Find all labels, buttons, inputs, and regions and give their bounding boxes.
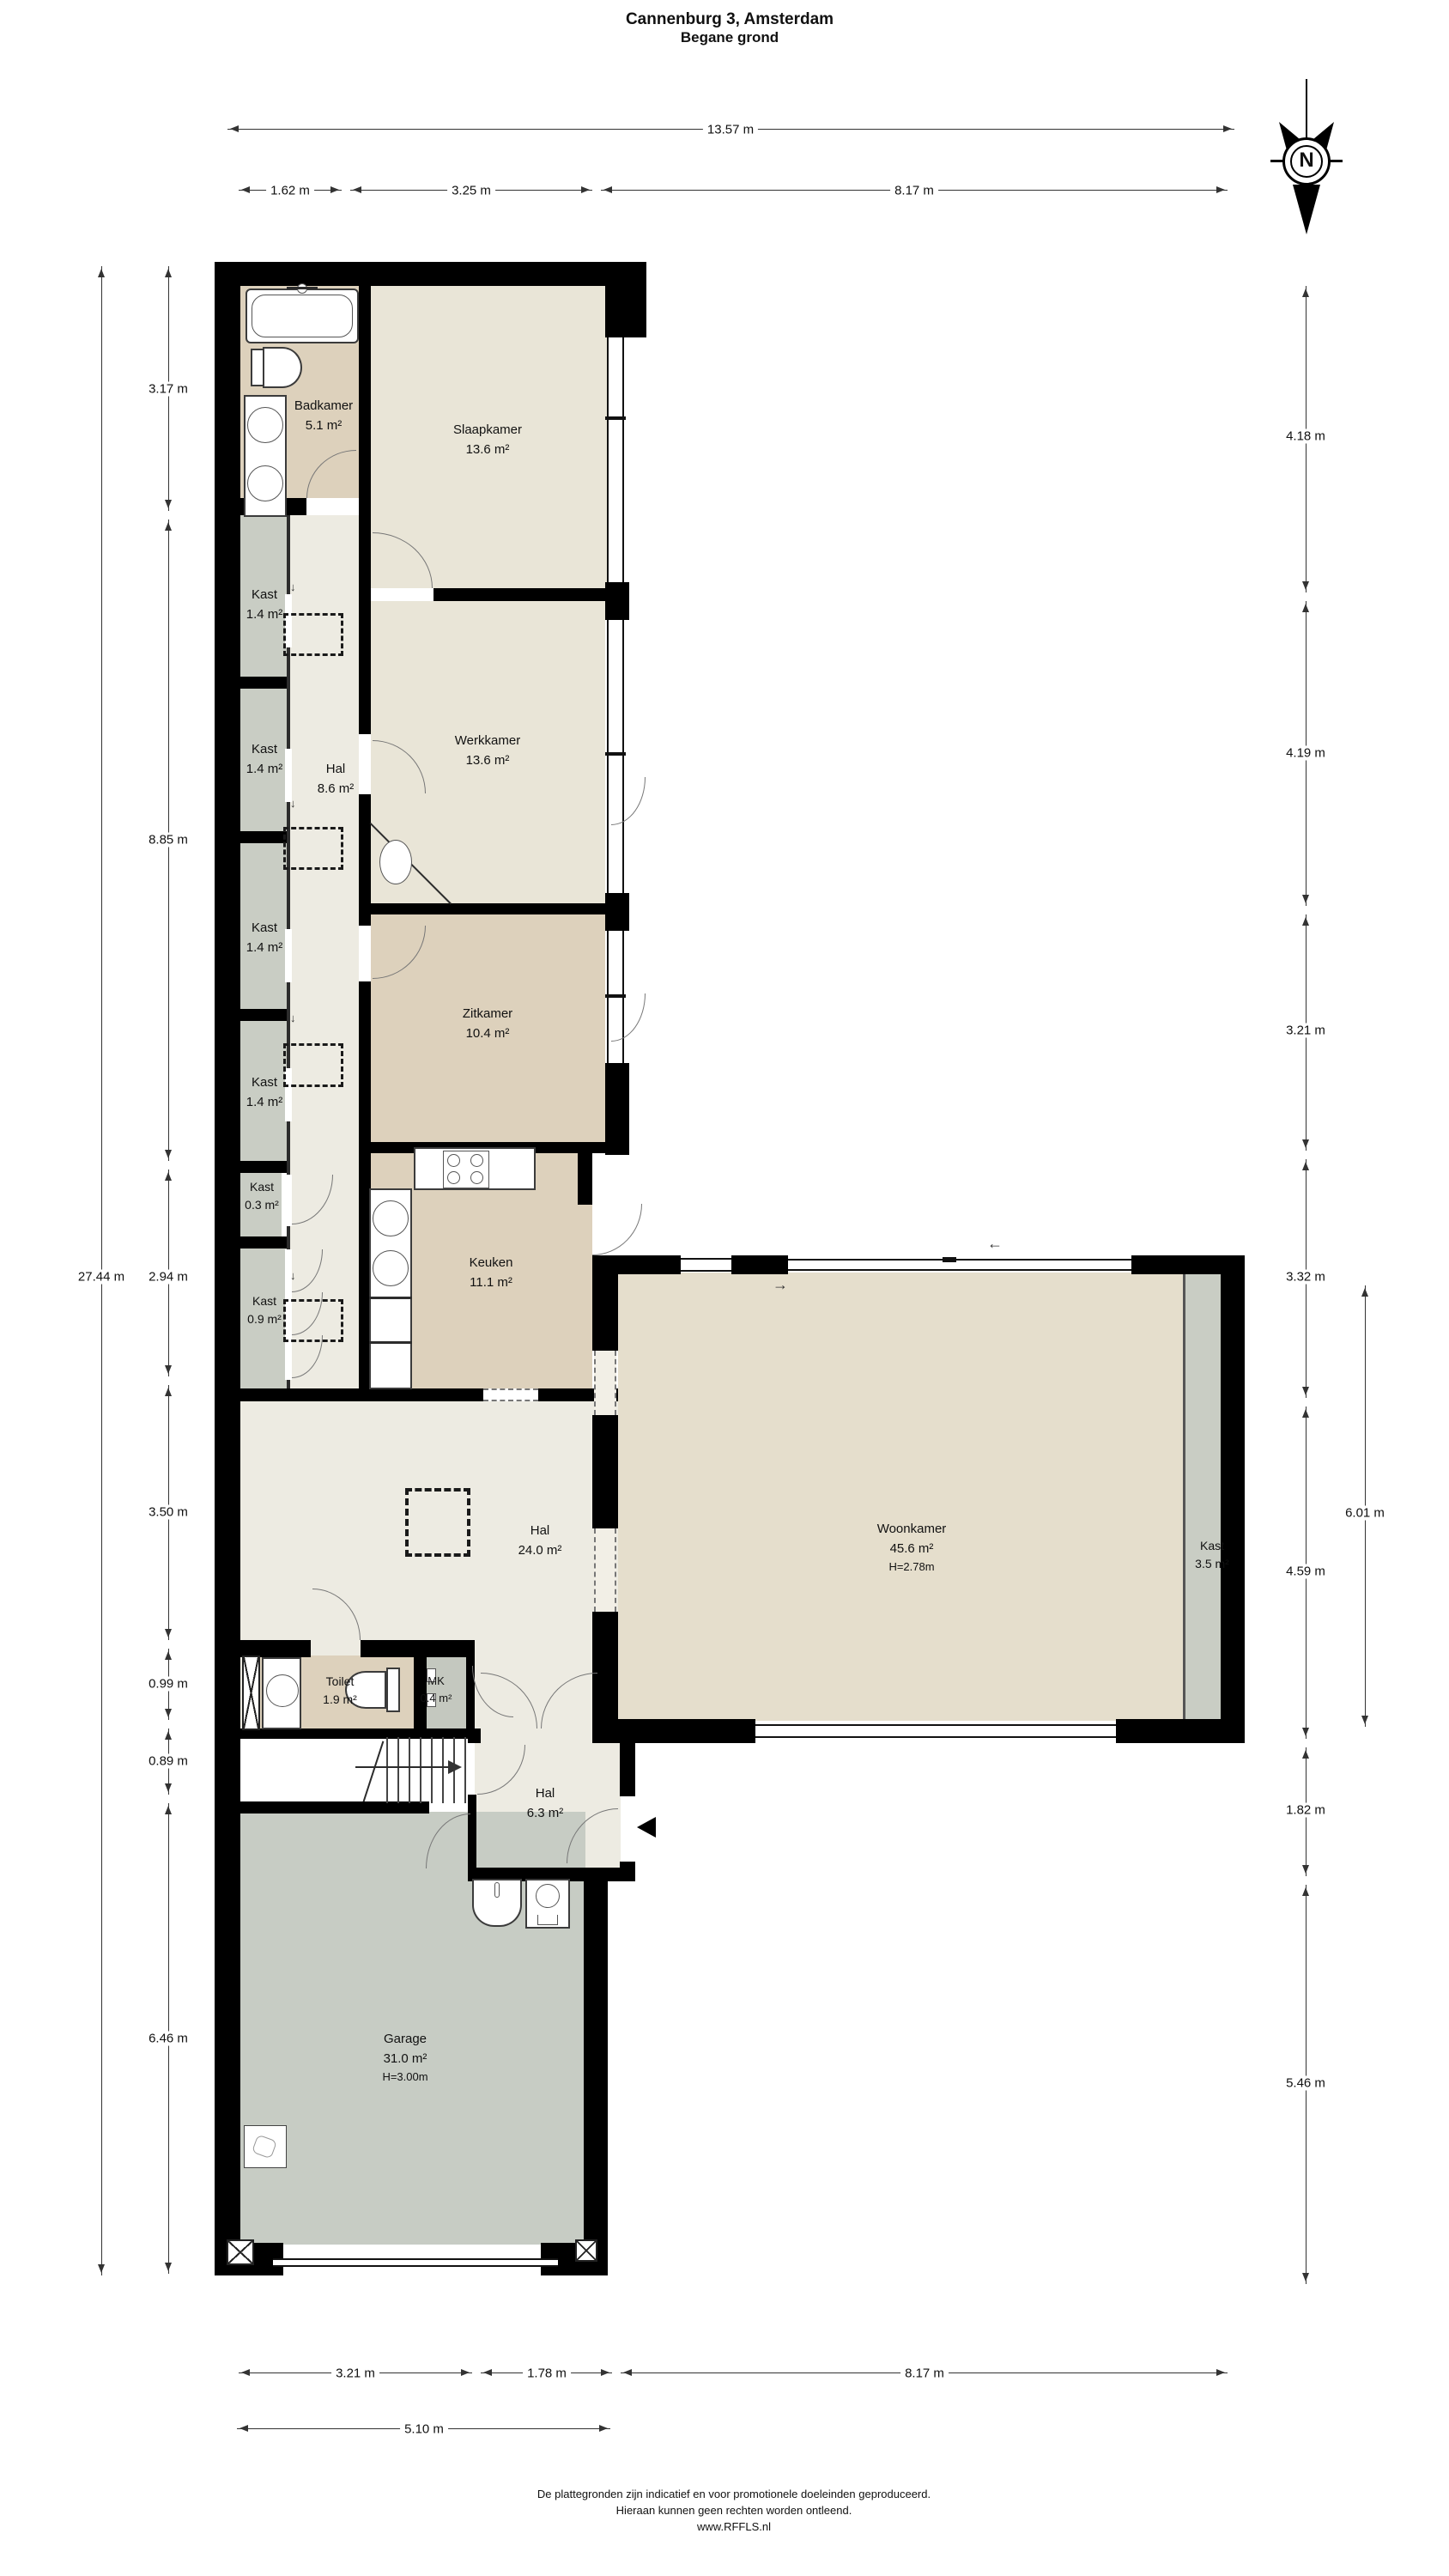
bathtub-inner <box>252 295 353 337</box>
dimension-label: 3.17 m <box>144 382 192 397</box>
hatch-tick-icon: ↓ <box>290 1269 296 1282</box>
wall <box>359 601 371 734</box>
kast35-floor <box>1185 1274 1221 1719</box>
dimension-label: 5.10 m <box>400 2422 448 2437</box>
wall <box>1183 1274 1185 1719</box>
title-floor: Begane grond <box>215 29 1245 46</box>
dimension-label: 5.46 m <box>1282 2076 1330 2091</box>
stair-direction-arrowhead <box>448 1760 462 1774</box>
footer-line-2: Hieraan kunnen geen rechten worden ontle… <box>206 2503 1262 2519</box>
room-label-hal1: Hal8.6 m² <box>318 760 355 799</box>
dimension-label: 3.21 m <box>331 2366 379 2381</box>
room-label-hal2: Hal24.0 m² <box>518 1522 562 1560</box>
compass-needle-line <box>1306 79 1307 141</box>
wall <box>620 1743 635 1796</box>
dimension-label: 3.21 m <box>1282 1024 1330 1038</box>
window-sill <box>605 752 626 756</box>
ceiling-hatch <box>283 613 343 656</box>
cabinet-divider <box>369 1341 412 1344</box>
duct-shaft <box>242 1656 260 1730</box>
compass-tail <box>1293 185 1320 234</box>
wall <box>359 1388 483 1401</box>
wall <box>215 1161 290 1173</box>
wall-opening <box>594 1351 616 1415</box>
room-label-zitkamer: Zitkamer10.4 m² <box>463 1005 512 1043</box>
bath-faucet-bar <box>287 287 318 289</box>
room-label-garage: Garage31.0 m²H=3.00m <box>382 2030 427 2086</box>
wall <box>359 262 371 515</box>
ceiling-hatch <box>283 827 343 870</box>
room-label-toilet: Toilet1.9 m² <box>323 1673 357 1709</box>
footer-line-1: De plattegronden zijn indicatief en voor… <box>206 2487 1262 2503</box>
hatch-tick-icon: ↓ <box>290 797 296 810</box>
wall <box>215 1236 290 1249</box>
wall <box>369 903 629 914</box>
room-label-kast09: Kast0.9 m² <box>247 1292 282 1328</box>
sliding-door-window <box>788 1259 1131 1271</box>
kitchen-sink <box>373 1250 409 1286</box>
room-label-kast2: Kast1.4 m² <box>246 740 283 779</box>
casement-arc <box>611 993 646 1042</box>
wall <box>215 831 290 843</box>
dimension-label: 0.99 m <box>144 1677 192 1692</box>
page-title: Cannenburg 3, Amsterdam Begane grond <box>215 10 1245 46</box>
room-label-hal3: Hal6.3 m² <box>527 1784 564 1823</box>
room-label-kast1: Kast1.4 m² <box>246 586 283 624</box>
wall <box>731 1255 788 1274</box>
wall <box>592 1255 681 1274</box>
footer-disclaimer: De plattegronden zijn indicatief en voor… <box>206 2487 1262 2536</box>
room-label-mk: MK0.4 m² <box>421 1673 452 1706</box>
wall <box>1221 1255 1245 1743</box>
dimension-label: 8.17 m <box>890 184 938 198</box>
kitchen-sink <box>373 1200 409 1236</box>
hatch-tick-icon: ↓ <box>290 580 296 593</box>
corner-sink <box>379 840 412 884</box>
washing-machine-drum <box>536 1884 560 1908</box>
footer-website: www.RFFLS.nl <box>206 2519 1262 2536</box>
entrance-arrow-icon <box>637 1817 656 1838</box>
dimension-label: 6.46 m <box>144 2032 192 2046</box>
burner <box>447 1154 460 1167</box>
room-label-kast03: Kast0.3 m² <box>245 1178 279 1214</box>
wall <box>359 981 371 1142</box>
wall <box>592 1274 618 1351</box>
woonkamer-floor <box>618 1273 1185 1721</box>
room-label-werkkamer: Werkkamer13.6 m² <box>455 732 520 770</box>
garage-door <box>273 2258 558 2267</box>
title-address: Cannenburg 3, Amsterdam <box>215 10 1245 29</box>
wall <box>359 515 371 601</box>
burner <box>447 1171 460 1184</box>
wall <box>215 262 628 286</box>
wall-opening <box>483 1388 538 1401</box>
room-label-kast35: Kast3.5 m² <box>1195 1537 1229 1573</box>
wall <box>468 1728 476 1743</box>
slide-arrow-icon: ← <box>987 1235 1003 1253</box>
window <box>681 1258 731 1272</box>
dimension-label: 4.18 m <box>1282 429 1330 444</box>
dimension-label: 27.44 m <box>74 1270 129 1285</box>
wall <box>359 794 371 903</box>
dimension-label: 2.94 m <box>144 1270 192 1285</box>
slide-arrow-icon: → <box>773 1276 788 1294</box>
ceiling-hatch <box>405 1488 470 1557</box>
stair-direction-line <box>355 1766 450 1768</box>
wall <box>578 1151 592 1205</box>
washbasin <box>266 1674 299 1707</box>
window-sill <box>605 416 626 420</box>
hatch-tick-icon: ↓ <box>290 1012 296 1024</box>
dimension-label: 3.50 m <box>144 1505 192 1520</box>
garage-post <box>227 2239 254 2265</box>
toilet-bowl <box>263 347 302 388</box>
wall <box>1116 1719 1245 1743</box>
dimension-label: 4.19 m <box>1282 746 1330 761</box>
dimension-label: 3.32 m <box>1282 1270 1330 1285</box>
dimension-label: 4.59 m <box>1282 1564 1330 1579</box>
ceiling-hatch <box>283 1043 343 1087</box>
casement-arc <box>611 777 646 825</box>
wall <box>605 262 646 337</box>
wall <box>584 1868 608 2275</box>
wall <box>215 1640 311 1657</box>
dimension-label: 6.01 m <box>1341 1506 1389 1521</box>
room-label-woonkamer: Woonkamer45.6 m²H=2.78m <box>877 1520 947 1576</box>
window <box>755 1724 1116 1738</box>
door-arc <box>592 1204 642 1255</box>
wall <box>605 582 629 620</box>
utility-tap <box>494 1882 500 1898</box>
door-opening <box>285 749 292 802</box>
floorplan-sheet: Cannenburg 3, Amsterdam Begane grond N <box>0 0 1449 2576</box>
washbasin <box>247 465 283 501</box>
wall <box>592 1415 618 1528</box>
compass-tick-right <box>1329 160 1343 162</box>
room-label-kast3: Kast1.4 m² <box>246 919 283 957</box>
dimension-label: 13.57 m <box>703 123 758 137</box>
wall <box>215 1009 290 1021</box>
wall <box>592 1719 755 1743</box>
room-label-keuken: Keuken11.1 m² <box>470 1254 513 1292</box>
dimension-label: 3.25 m <box>447 184 495 198</box>
ceiling-hatch <box>283 1299 343 1342</box>
dimension-label: 8.17 m <box>900 2366 949 2381</box>
cabinet-divider <box>369 1297 412 1299</box>
room-label-slaapkamer: Slaapkamer13.6 m² <box>453 421 522 459</box>
wall <box>605 1063 629 1155</box>
wall <box>215 1801 429 1814</box>
room-label-kast4: Kast1.4 m² <box>246 1073 283 1112</box>
dimension-label: 8.85 m <box>144 833 192 848</box>
window <box>607 620 624 893</box>
dimension-label: 1.62 m <box>266 184 314 198</box>
compass-north-label: N <box>1282 137 1331 185</box>
wall <box>215 262 240 2275</box>
wall <box>215 1388 371 1401</box>
burner <box>470 1171 483 1184</box>
window <box>607 337 624 582</box>
washbasin <box>247 407 283 443</box>
dimension-label: 1.78 m <box>523 2366 571 2381</box>
toilet-cistern <box>386 1668 400 1712</box>
door-opening <box>285 929 292 982</box>
dimension-label: 1.82 m <box>1282 1803 1330 1818</box>
wall <box>215 677 290 689</box>
wall <box>433 588 605 601</box>
room-label-badkamer: Badkamer5.1 m² <box>294 397 353 435</box>
dimension-label: 0.89 m <box>144 1754 192 1769</box>
sliding-door-meeting-stile <box>943 1257 956 1262</box>
garage-post <box>575 2239 597 2262</box>
wall <box>466 1640 475 1739</box>
washing-machine-tray <box>537 1915 558 1925</box>
burner <box>470 1154 483 1167</box>
wall <box>620 1862 635 1881</box>
wall-opening <box>594 1528 616 1612</box>
door-opening <box>285 1175 292 1226</box>
